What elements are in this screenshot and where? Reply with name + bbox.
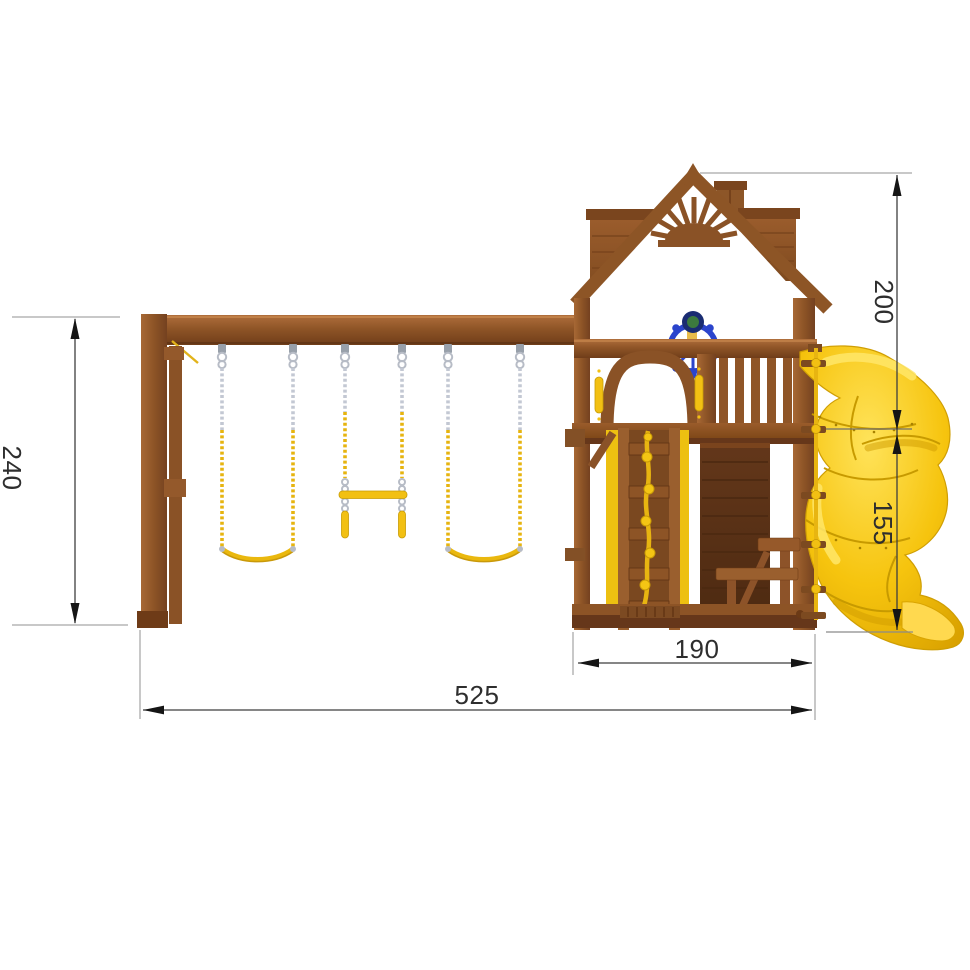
swing-frame — [137, 314, 582, 628]
safety-handle — [695, 375, 703, 411]
swing-hangers — [218, 344, 524, 353]
arched-window — [607, 357, 694, 430]
post-base — [137, 611, 168, 628]
swing-beam — [150, 315, 582, 345]
playground-dimension-drawing: 240 200 155 190 525 — [0, 0, 970, 970]
swings — [218, 344, 524, 562]
chains-yellow — [222, 412, 520, 548]
a-frame-front-leg — [141, 314, 167, 628]
chains-silver — [222, 368, 520, 430]
chimney — [714, 181, 747, 190]
base-beam — [572, 604, 817, 615]
dim-label-tower-base-width: 190 — [665, 636, 729, 662]
trapeze-handle — [399, 511, 406, 538]
drawing-canvas — [0, 0, 970, 970]
dim-label-tower-height: 200 — [871, 270, 897, 334]
trapeze-handle — [342, 511, 349, 538]
hanger-rings — [218, 353, 524, 368]
belt-swing-right — [445, 546, 523, 562]
dim-label-total-height: 240 — [0, 436, 25, 500]
trapeze-bar — [339, 479, 407, 538]
dim-label-slide-platform-height: 155 — [870, 491, 896, 555]
playhouse-tower — [565, 169, 828, 630]
belt-swing-left — [219, 546, 296, 562]
dim-label-overall-length: 525 — [445, 682, 509, 708]
safety-handle — [595, 377, 603, 413]
balcony-railing — [719, 358, 792, 424]
